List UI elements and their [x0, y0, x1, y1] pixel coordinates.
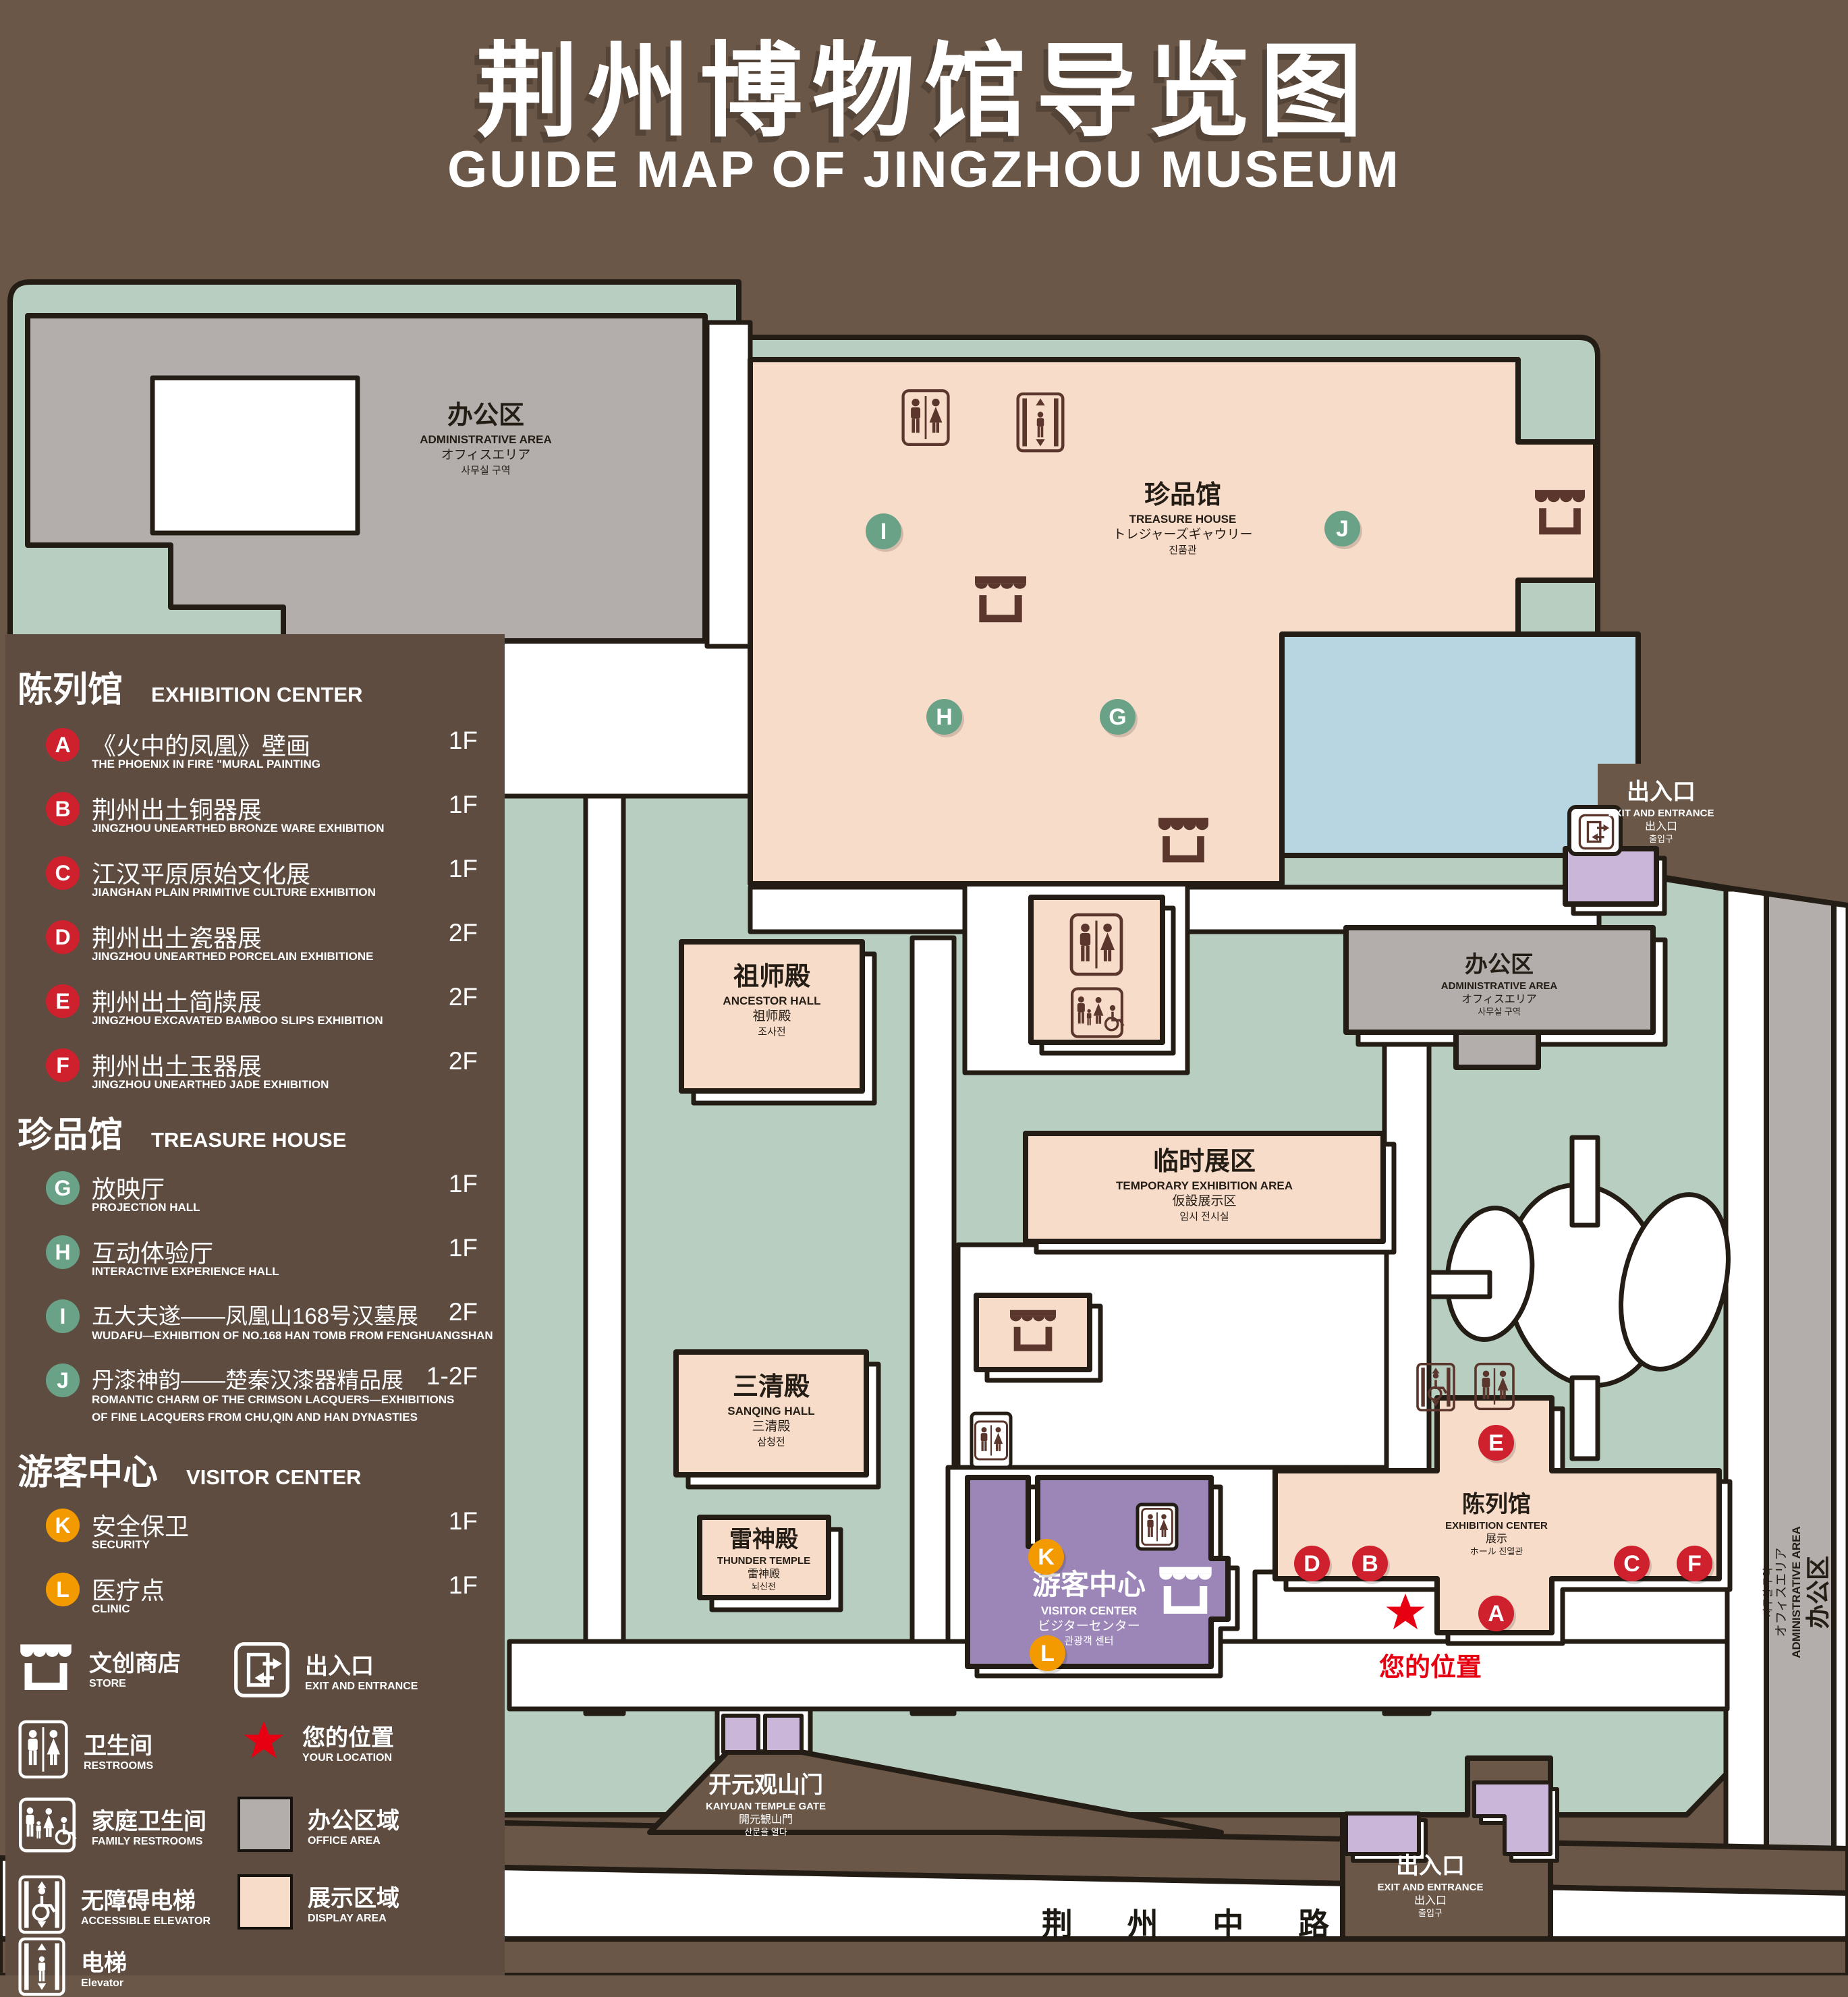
- path-admin-treasure-gap: [707, 322, 750, 646]
- label-admin-nw: 办公区ADMINISTRATIVE AREA オフィスエリア사무실 구역: [420, 399, 552, 478]
- path-east-margin: [1726, 889, 1766, 1928]
- legend-item-E: E 荆州出土简牍展 JINGZHOU EXCAVATED BAMBOO SLIP…: [46, 984, 491, 1042]
- badge-B: B: [46, 792, 80, 826]
- legend-heading-exhibition-center: 陈列馆EXHIBITION CENTER: [18, 661, 362, 712]
- exit-right-purple-building: [1565, 849, 1656, 904]
- legend-symbol-family-restrooms: 家庭卫生间FAMILY RESTROOMS: [18, 1797, 206, 1853]
- label-thunder-temple: 雷神殿THUNDER TEMPLE 雷神殿뇌신전: [717, 1525, 810, 1593]
- store-icon: [18, 1641, 74, 1693]
- exit-bottom-purple-west: [1346, 1813, 1419, 1854]
- badge-I: I: [46, 1299, 80, 1333]
- garden-path-s: [1572, 1378, 1598, 1459]
- map-marker-A: A: [1478, 1596, 1514, 1631]
- page-subtitle: GUIDE MAP OF JINGZHOU MUSEUM: [0, 140, 1848, 199]
- badge-F: F: [46, 1048, 80, 1082]
- badge-K: K: [46, 1509, 80, 1542]
- badge-D: D: [46, 920, 80, 954]
- legend-item-C: C 江汉平原原始文化展 JIANGHAN PLAIN PRIMITIVE CUL…: [46, 856, 491, 914]
- walkway-west: [586, 796, 623, 1714]
- label-temporary-exhibition: 临时展区TEMPORARY EXHIBITION AREA 仮設展示区임시 전시…: [1116, 1146, 1293, 1224]
- legend-symbol-exit: 出入口EXIT AND ENTRANCE: [233, 1641, 418, 1698]
- legend-symbol-display-area: 展示区域DISPLAY AREA: [237, 1874, 399, 1930]
- map-marker-E: E: [1478, 1425, 1514, 1461]
- legend-item-F: F 荆州出土玉器展 JINGZHOU UNEARTHED JADE EXHIBI…: [46, 1048, 491, 1106]
- legend-symbol-store: 文创商店STORE: [18, 1641, 181, 1693]
- page-title: 荆州博物馆导览图: [0, 8, 1848, 157]
- your-location-label: 您的位置: [1379, 1646, 1482, 1683]
- legend-symbol-restrooms: 卫生间RESTROOMS: [18, 1719, 153, 1780]
- legend-item-G: G 放映厅 PROJECTION HALL 1F: [46, 1171, 491, 1229]
- legend-symbol-office-area: 办公区域OFFICE AREA: [237, 1797, 399, 1852]
- your-location-star-icon: [1385, 1594, 1430, 1635]
- badge-A: A: [46, 728, 80, 762]
- accessible-elevator-icon: [18, 1874, 66, 1935]
- badge-H: H: [46, 1235, 80, 1269]
- legend-symbol-your-location: 您的位置YOUR LOCATION: [243, 1719, 394, 1764]
- label-road: 荆 州 中 路: [1042, 1900, 1352, 1944]
- legend-heading-treasure-house: 珍品馆TREASURE HOUSE: [18, 1106, 346, 1157]
- label-exit-right: 出入口EXIT AND ENTRANCE 出入口출입구: [1608, 777, 1714, 845]
- label-sanqing-hall: 三清殿SANQING HALL 三清殿삼청전: [727, 1371, 814, 1449]
- map-marker-I: I: [866, 513, 901, 549]
- label-treasure-house: 珍品馆TREASURE HOUSE トレジャーズギャウリー진품관: [1113, 479, 1252, 557]
- gate-post-left: [723, 1716, 758, 1752]
- office-area-swatch: [237, 1797, 293, 1852]
- badge-E: E: [46, 984, 80, 1018]
- display-area-swatch: [237, 1874, 293, 1930]
- map-marker-L: L: [1030, 1635, 1065, 1671]
- badge-C: C: [46, 856, 80, 890]
- label-admin-far-right: 사무실 구역 オフィスエリア ADMINISTRATIVE AREA 办公区: [1762, 1390, 1843, 1795]
- map-marker-G: G: [1100, 699, 1136, 735]
- map-marker-C: C: [1614, 1546, 1650, 1581]
- legend-item-I: I 五大夫遂——凤凰山168号汉墓展 WUDAFU—EXHIBITION OF …: [46, 1299, 491, 1357]
- legend-item-D: D 荆州出土瓷器展 JINGZHOU UNEARTHED PORCELAIN E…: [46, 920, 491, 978]
- restroom-icon: [18, 1719, 69, 1780]
- guide-map-poster: { "title": {"zh": "荆州博物馆导览图", "en": "GUI…: [0, 0, 1848, 1975]
- badge-G: G: [46, 1171, 80, 1205]
- gate-post-right: [765, 1716, 802, 1752]
- exit-icon: [233, 1641, 290, 1698]
- label-ancestor-hall: 祖师殿ANCESTOR HALL 祖师殿조사전: [723, 961, 820, 1039]
- map-marker-B: B: [1352, 1546, 1388, 1581]
- legend-item-A: A 《火中的凤凰》壁画 THE PHOENIX IN FIRE "MURAL P…: [46, 728, 491, 786]
- map-marker-F: F: [1677, 1546, 1712, 1581]
- legend-item-L: L 医疗点 CLINIC 1F: [46, 1573, 491, 1631]
- label-exit-bottom: 出入口EXIT AND ENTRANCE 出入口출입구: [1378, 1851, 1484, 1919]
- legend-item-K: K 安全保卫 SECURITY 1F: [46, 1509, 491, 1567]
- elevator-icon: [18, 1936, 66, 1997]
- badge-J: J: [46, 1363, 80, 1397]
- legend-symbol-elevator: 电梯Elevator: [18, 1936, 127, 1997]
- label-admin-right: 办公区ADMINISTRATIVE AREA オフィスエリア사무실 구역: [1441, 950, 1558, 1018]
- admin-area-right-tab: [1456, 1032, 1538, 1067]
- your-location-star-icon: [243, 1721, 287, 1763]
- label-kaiyuan-gate: 开元观山门KAIYUAN TEMPLE GATE 開元観山門산문을 열다: [706, 1770, 826, 1838]
- legend-heading-visitor-center: 游客中心VISITOR CENTER: [18, 1444, 362, 1494]
- legend-item-H: H 互动体验厅 INTERACTIVE EXPERIENCE HALL 1F: [46, 1235, 491, 1293]
- map-marker-H: H: [926, 699, 962, 735]
- garden-path-n: [1572, 1137, 1598, 1225]
- map-marker-D: D: [1294, 1546, 1330, 1581]
- accessible-elevator-icon: [1418, 1364, 1454, 1410]
- legend-item-J: J 丹漆神韵——楚秦汉漆器精品展 ROMANTIC CHARM OF THE C…: [46, 1363, 491, 1422]
- family-restroom-icon: [18, 1797, 77, 1853]
- legend-symbol-accessible-elevator: 无障碍电梯ACCESSIBLE ELEVATOR: [18, 1874, 211, 1935]
- garden-path-w: [1429, 1272, 1490, 1297]
- store-small-building: [976, 1295, 1090, 1370]
- badge-L: L: [46, 1573, 80, 1606]
- map-marker-K: K: [1028, 1539, 1064, 1575]
- label-exhibition-center: 陈列馆EXHIBITION CENTER 展示ホール 진열관: [1445, 1490, 1548, 1558]
- admin-nw-courtyard: [152, 378, 358, 533]
- elevator-icon: [1018, 394, 1063, 451]
- legend-item-B: B 荆州出土铜器展 JINGZHOU UNEARTHED BRONZE WARE…: [46, 792, 491, 850]
- map-marker-J: J: [1324, 511, 1360, 546]
- legend-panel: 陈列馆EXHIBITION CENTER A 《火中的凤凰》壁画 THE PHO…: [5, 634, 505, 1975]
